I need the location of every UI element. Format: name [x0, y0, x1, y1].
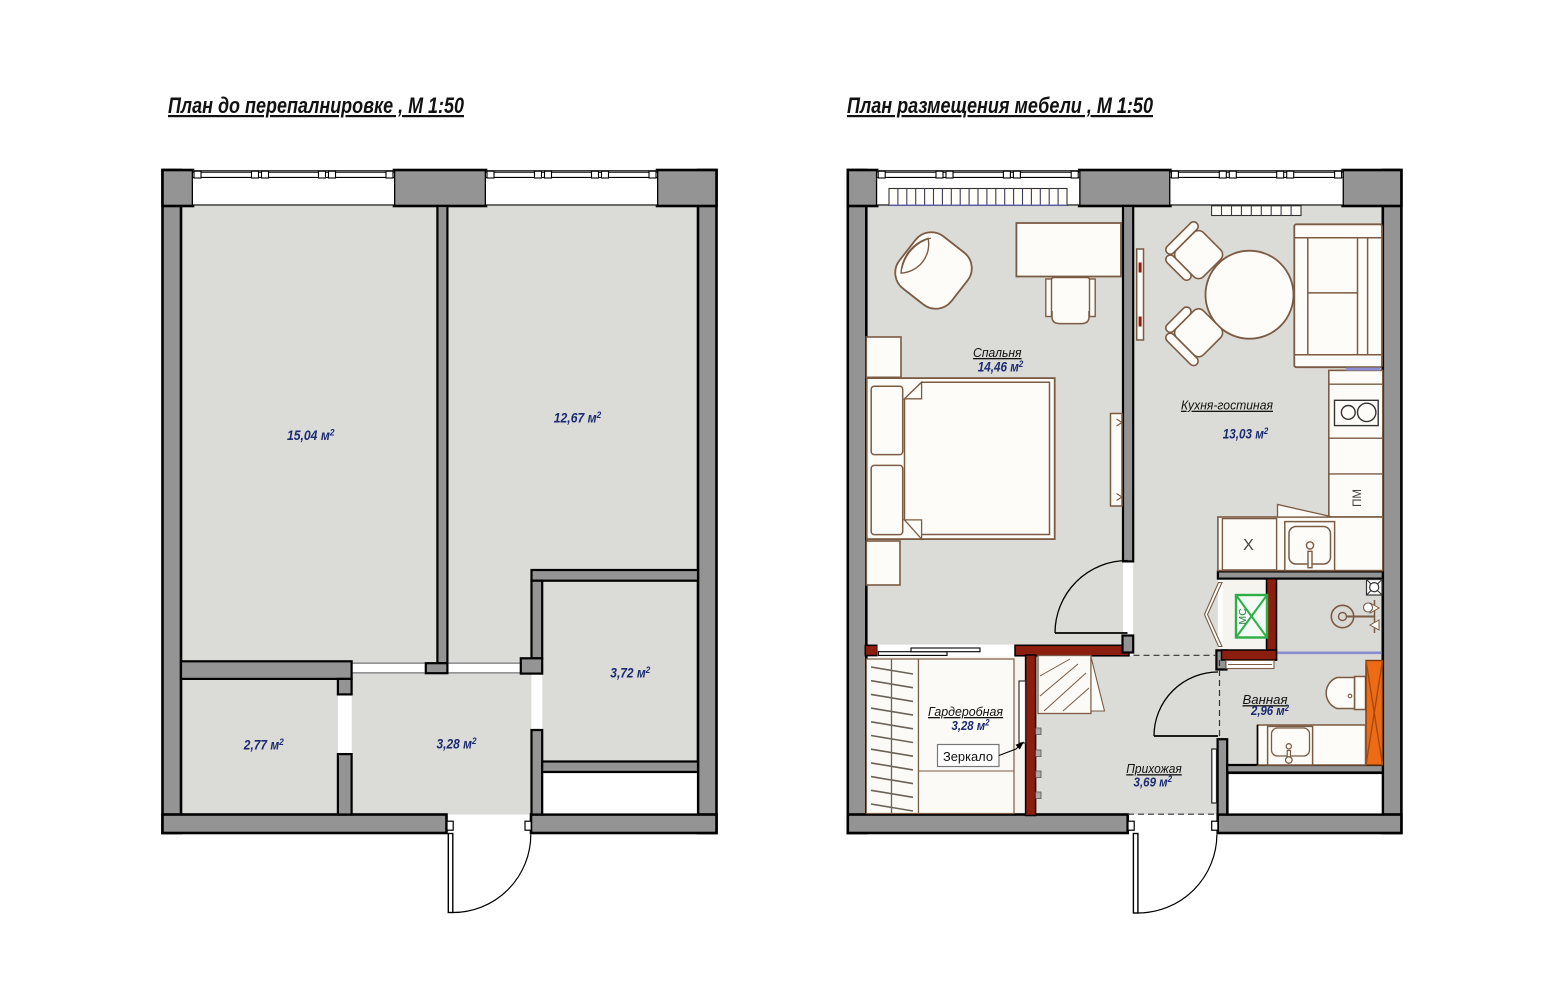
svg-text:12,67 м2: 12,67 м2	[554, 410, 602, 426]
svg-text:3,72 м2: 3,72 м2	[610, 665, 651, 681]
svg-text:2,77 м2: 2,77 м2	[243, 737, 284, 753]
svg-text:ПМ: ПМ	[1352, 489, 1364, 507]
svg-text:2,96 м2: 2,96 м2	[1250, 703, 1289, 718]
svg-text:3,69 м2: 3,69 м2	[1134, 774, 1173, 789]
svg-text:План размещения мебели , М 1:5: План размещения мебели , М 1:50	[847, 93, 1154, 118]
svg-text:X: X	[1243, 537, 1254, 554]
svg-text:МС: МС	[1237, 608, 1249, 625]
svg-text:3,28 м2: 3,28 м2	[952, 718, 990, 733]
svg-text:Спальня: Спальня	[973, 345, 1022, 360]
svg-text:15,04 м2: 15,04 м2	[287, 427, 335, 443]
svg-text:План до перепалнировке , М 1:5: План до перепалнировке , М 1:50	[168, 93, 465, 118]
svg-text:Кухня-гостиная: Кухня-гостиная	[1181, 398, 1273, 413]
svg-text:14,46 м2: 14,46 м2	[978, 359, 1024, 375]
svg-text:Гардеробная: Гардеробная	[928, 704, 1003, 719]
svg-text:3,28 м2: 3,28 м2	[437, 736, 478, 752]
svg-text:Зеркало: Зеркало	[943, 749, 993, 764]
svg-text:13,03 м2: 13,03 м2	[1223, 426, 1269, 442]
